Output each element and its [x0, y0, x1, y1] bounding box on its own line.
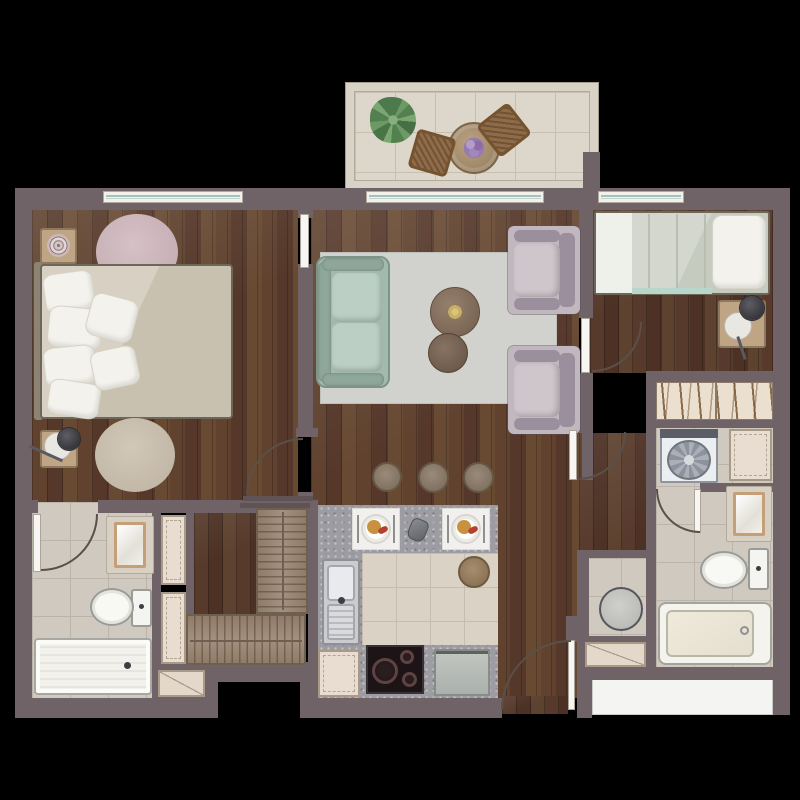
toilet2-bowl — [700, 551, 748, 589]
bed2-teal-blanket — [632, 288, 712, 294]
bedroom2-door-leaf — [581, 318, 590, 373]
armchair2-seat — [514, 363, 560, 417]
closet-horizontal — [186, 614, 306, 665]
nook-side-table — [599, 587, 643, 631]
toilet1-bowl — [90, 588, 134, 626]
sofa-arm-top — [322, 258, 384, 271]
bottom-wall-mid — [300, 698, 502, 718]
floor-plan — [0, 0, 800, 800]
closet-vertical — [256, 508, 308, 614]
lamp2-head — [740, 296, 764, 320]
bedroom2-south-wall — [646, 371, 773, 382]
hall-shoe-cabinet — [158, 670, 205, 697]
sofa-cushion-2 — [332, 323, 382, 372]
closet-shelf — [656, 382, 773, 420]
sink-faucet — [338, 597, 345, 604]
bath1-door-arc — [41, 514, 98, 571]
bathtub-drain — [740, 626, 749, 635]
window-living — [366, 191, 544, 203]
bath2-door-arc — [656, 489, 700, 533]
toilet1-button — [139, 604, 144, 609]
rug-beige — [95, 418, 175, 492]
left-wall — [15, 210, 32, 718]
armchair2-arm-top — [514, 350, 560, 362]
shower-tray — [34, 638, 152, 695]
rightwing-west-wall — [646, 371, 656, 667]
bedroom2-west-wall-upper — [579, 210, 593, 318]
wall-patch-b — [300, 680, 318, 698]
bath1-cabinet-1 — [161, 515, 186, 585]
bath2-south-wall — [577, 667, 773, 680]
hall2-floor — [194, 508, 256, 618]
hall-door-arc — [578, 432, 626, 480]
mirror1 — [114, 522, 146, 568]
entry-door-arc — [501, 640, 571, 710]
window-bedroom2 — [598, 191, 684, 203]
bottom-wall-left — [15, 698, 218, 718]
bed2-pillow — [712, 215, 766, 289]
shower-drain — [124, 662, 131, 669]
closet-slide-door-2 — [240, 503, 310, 508]
bed2-fold-3 — [704, 214, 706, 292]
bath1-cabinet-wall — [186, 513, 194, 615]
balcony-side-wall — [583, 152, 600, 190]
armchair1-arm-bottom — [514, 298, 560, 310]
bedroom2-door-arc — [592, 322, 642, 372]
coffee-table-decor — [447, 304, 463, 320]
sofa-back — [318, 262, 331, 382]
mirror2 — [733, 492, 765, 536]
sink-basin — [327, 565, 355, 601]
burner-3 — [402, 672, 417, 687]
washer-band — [660, 429, 718, 438]
toilet2-button — [756, 566, 761, 571]
bedroom1-door-jamb — [296, 428, 318, 437]
burner-2 — [400, 650, 414, 664]
bar-stool-3 — [463, 462, 494, 493]
exterior-ledge — [592, 678, 773, 715]
bath1-cabinet-2 — [161, 592, 186, 664]
closet-slide-door-1 — [243, 496, 313, 501]
bed2-fold-1 — [648, 214, 650, 292]
notch-wall — [218, 662, 318, 682]
window-bedroom1 — [103, 191, 243, 203]
bedroom1-east-wall — [298, 264, 313, 433]
coffee-table-small — [428, 333, 468, 373]
bedroom2-west-wall-lower — [579, 373, 593, 433]
sofa-arm-bottom — [322, 373, 384, 386]
cutting-board — [458, 556, 490, 588]
sink-drainboard — [327, 604, 355, 640]
shelf-south-wall — [646, 420, 773, 428]
burner-1 — [372, 658, 398, 684]
dishwasher-top-strip — [436, 651, 488, 654]
armchair1-seat — [514, 243, 560, 297]
washer-drum — [667, 440, 711, 480]
bedroom1-door-leaf — [300, 214, 309, 268]
bar-stool-1 — [372, 462, 402, 492]
sofa-cushion-1 — [332, 273, 382, 322]
nightstand-top-decor — [47, 234, 70, 257]
armchair1-arm-top — [514, 230, 560, 242]
right-wall — [773, 210, 790, 715]
bed2-fold-2 — [676, 214, 678, 292]
dishwasher — [434, 649, 490, 696]
bed2-sheet — [596, 213, 632, 293]
nook-north-wall — [577, 550, 647, 558]
laundry-cabinet — [729, 429, 772, 481]
kitchen-base-cabinet — [318, 650, 360, 697]
entry-door-jamb — [566, 616, 579, 642]
armchair1-back — [559, 233, 575, 307]
nook-cabinet — [585, 642, 646, 667]
bath1-door-leaf — [33, 514, 41, 572]
armchair2-back — [559, 353, 575, 427]
balcony-table-flowers — [462, 136, 486, 160]
lamp1-head — [58, 428, 80, 450]
bar-stool-2 — [418, 462, 449, 493]
balcony-plant — [370, 97, 416, 143]
south-wall-west — [15, 500, 38, 513]
bedroom1-lower-door-arc — [246, 438, 303, 495]
armchair2-arm-bottom — [514, 418, 560, 430]
hall-door-leaf — [569, 430, 577, 480]
